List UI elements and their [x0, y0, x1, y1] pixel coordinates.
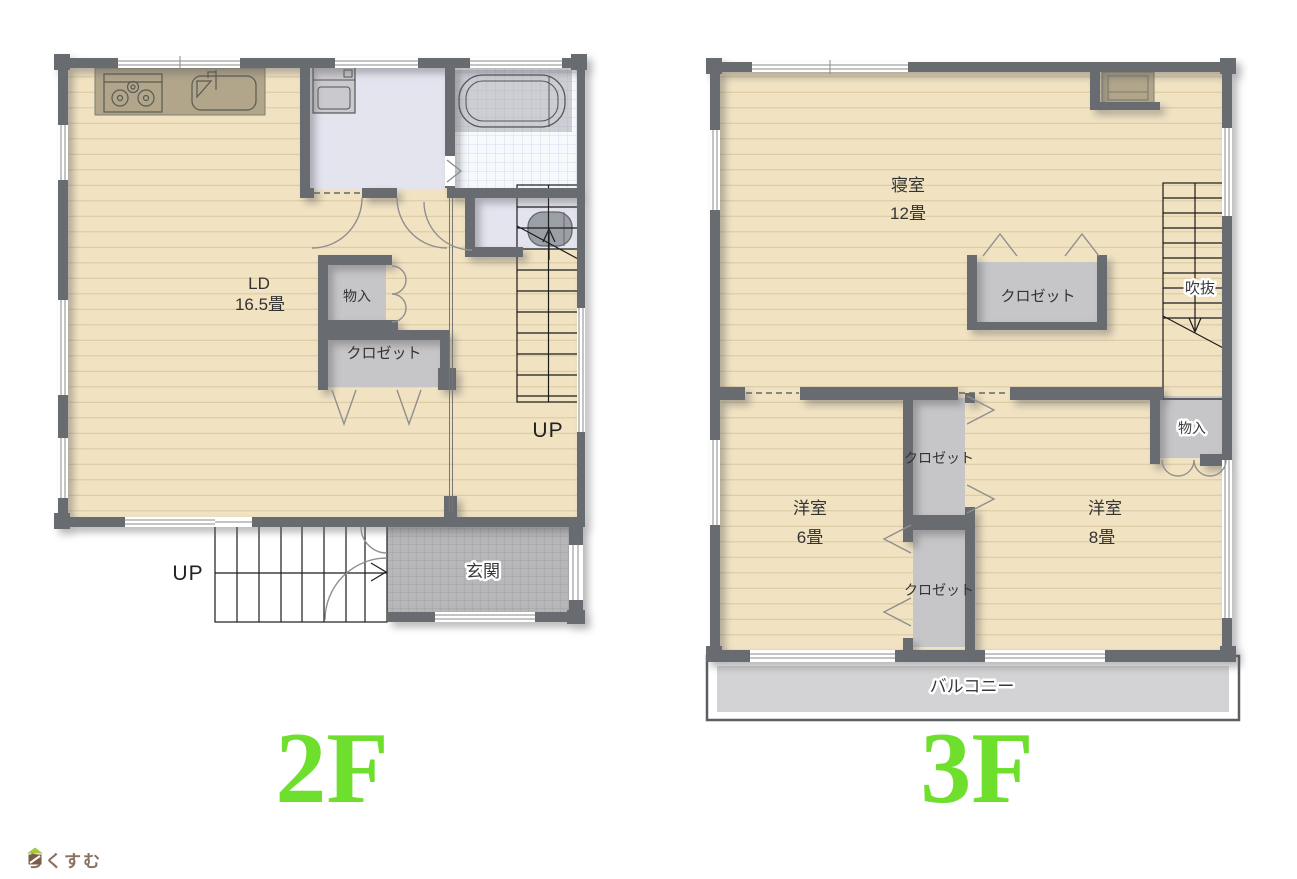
bedroom-label: 寝室 [891, 175, 925, 195]
west8-size-label: 8畳 [1089, 528, 1115, 547]
balcony-label: バルコニー [930, 677, 1015, 696]
corner-counter [1102, 72, 1154, 106]
west6-size-label: 6畳 [797, 528, 823, 547]
floor3-tag: 3F [877, 716, 1077, 826]
ld-size-label: 16.5畳 [235, 295, 285, 314]
outer-stairs [215, 526, 387, 622]
washing-machine-icon [313, 67, 355, 113]
bathtub-icon [455, 70, 572, 132]
ld-label: LD [248, 274, 270, 293]
floorplan-canvas: LD 16.5畳 物入 クロゼット 玄関 UP UP 寝室 12畳 クロゼット … [0, 0, 1297, 879]
closet-a-label: クロゼット [904, 450, 974, 466]
genkan-label: 玄関 [466, 562, 500, 581]
house-icon [26, 847, 44, 865]
storage3-label: 物入 [1178, 420, 1206, 436]
up-label-outer: UP [172, 562, 203, 585]
storage-label: 物入 [343, 288, 371, 304]
rakusumu-logo: らくすむ [26, 847, 102, 872]
closet-b-label: クロゼット [904, 582, 974, 598]
bedroom-size-label: 12畳 [890, 204, 926, 223]
floor2-tag: 2F [232, 716, 432, 826]
bedroom-closet-label: クロゼット [1000, 288, 1075, 305]
west6-label: 洋室 [793, 499, 827, 518]
floorplan-drawing: LD 16.5畳 物入 クロゼット 玄関 UP UP 寝室 12畳 クロゼット … [0, 0, 1297, 879]
up-label-inner: UP [532, 419, 563, 442]
toilet-icon [528, 212, 572, 246]
void-label: 吹抜 [1185, 280, 1215, 297]
kitchen-counter [95, 68, 265, 115]
closet-label: クロゼット [346, 345, 421, 362]
west8-label: 洋室 [1088, 499, 1122, 518]
